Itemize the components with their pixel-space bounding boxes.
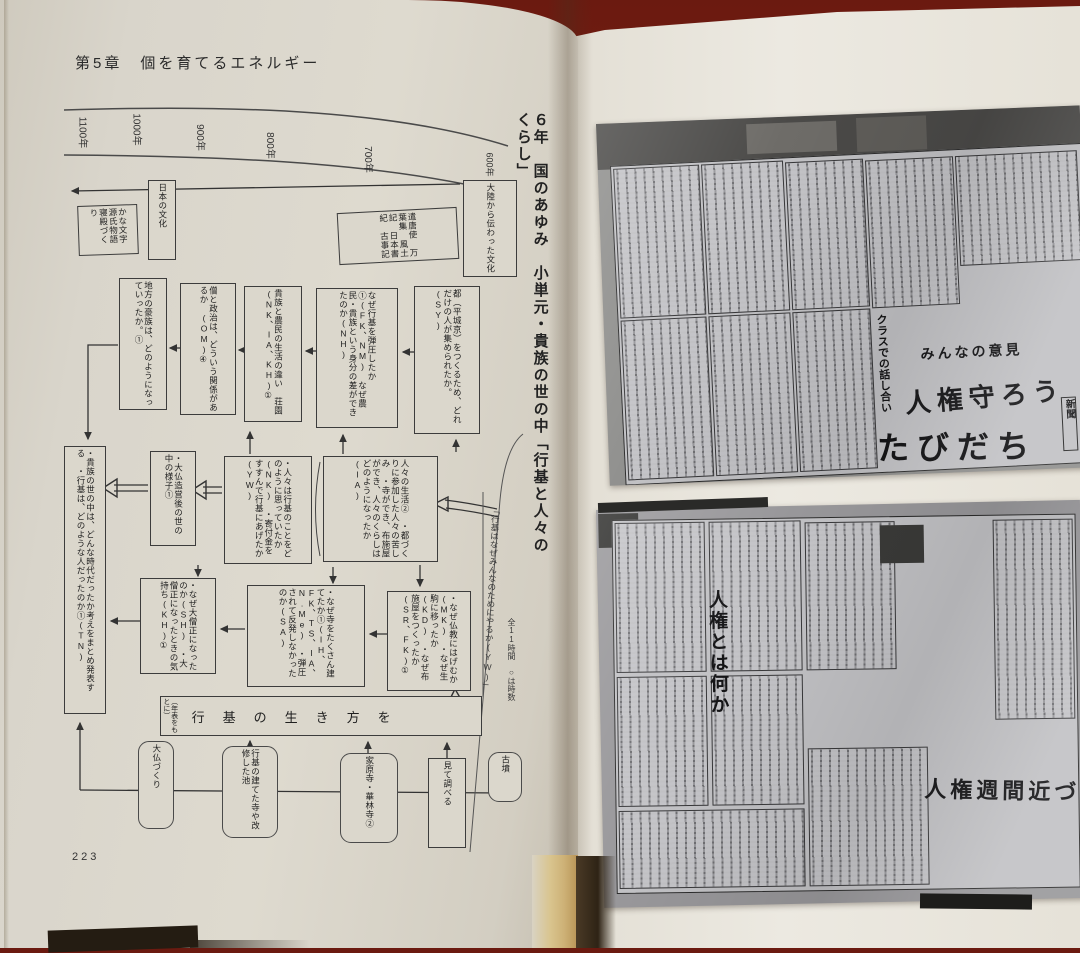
flow-box-mite-shiraberu: 見て調べる <box>428 758 466 848</box>
flow-box-text: ・なぜ仏教にはげむか(MK) ・なぜ生駒に移ったか(KD) ・なぜ布施屋をつくっ… <box>400 594 457 688</box>
gutter-bottom-shadow <box>576 856 616 948</box>
article-cell <box>785 159 870 311</box>
flow-box-text: 大陸から伝わった文化 <box>485 183 495 274</box>
flow-box-matome: ・貴族の世の中は、どんな時代だったか考えをまとめ発表する ・行基は、どのような人… <box>64 446 106 714</box>
flow-box-chiho-gozoku: 地方の豪族は、どのようになっていったか。① <box>119 278 167 410</box>
photo-bottom-bar <box>920 893 1032 909</box>
page-edges-stack <box>532 855 578 948</box>
photo2-main-headline: 人権とは何か <box>706 589 729 719</box>
flow-box-kizoku-nomin: 貴族と農民の生活の違い 荘園(NK、IA、KH)① <box>244 286 302 422</box>
article-cell <box>619 808 806 889</box>
timeline-year: 800年 <box>264 132 279 159</box>
article-cell <box>808 747 930 887</box>
flow-box-daisojo: ・なぜ大僧正になったのか(SH) ・大僧正になったときの気持ち(KH)① <box>140 578 216 674</box>
ikikata-main: 行基の生き方を <box>182 707 480 726</box>
article-cell <box>613 165 706 319</box>
photo-dark-band-patch <box>746 121 837 154</box>
flow-box-text: 地方の豪族は、どのようになっていったか。① <box>133 281 152 407</box>
article-cell <box>621 316 715 480</box>
flow-box-text: 貴族と農民の生活の違い 荘園(NK、IA、KH)① <box>263 289 282 419</box>
cloud-box-kofun: 古墳 <box>488 752 522 802</box>
article-cell <box>792 308 878 472</box>
ikikata-note: （年表をもとに） <box>162 698 178 734</box>
book-bottom-edge <box>48 925 199 952</box>
article-cell <box>993 519 1076 720</box>
article-cell <box>615 522 707 673</box>
photo2-subheadline: 人権週間近づく <box>924 772 1080 808</box>
flow-box-kentoshi: 遣唐使 万葉集 風土記 日本書紀 古事記 <box>337 207 460 265</box>
flow-box-nihon-bunka: 日本の文化 <box>148 180 176 260</box>
timeline-year: 600年 <box>484 152 497 176</box>
photo2-dark-square <box>880 525 925 564</box>
flow-box-bukkyo: ・なぜ仏教にはげむか(MK) ・なぜ生駒に移ったか(KD) ・なぜ布施屋をつくっ… <box>387 591 471 691</box>
photo-dark-band-patch <box>856 115 927 152</box>
flow-box-hitobito-seikatsu: 人々の生活② ・都づくりに参加した人々の苦しみ ・寺ができ、布施屋ができ、人々の… <box>323 456 438 562</box>
cloud-box-tera-ike: 行基の建てた寺や改修した池 <box>222 746 278 838</box>
flow-box-text: ・なぜ寺をたくさん建てたか①(IH、FK、TS、IA、N.Me) ・弾圧されて反… <box>277 588 334 684</box>
article-cell <box>701 161 790 315</box>
cloud-box-daibutsu: 大仏づくり <box>138 741 174 829</box>
left-book-page: 第5章 個を育てるエネルギー <box>0 0 578 948</box>
book-bottom-shadow <box>190 940 310 948</box>
flow-box-text: かな文字 源氏物語 寝殿づくり <box>88 207 128 252</box>
article-cell <box>617 676 709 807</box>
flow-box-text: ・貴族の世の中は、どんな時代だったか考えをまとめ発表する ・行基は、どのような人… <box>75 449 94 711</box>
cloud-box-text: 大仏づくり <box>151 744 161 826</box>
cloud-box-ebaraji: 家原寺・華林寺② <box>340 753 398 843</box>
flow-box-text: 人々の生活② ・都づくりに参加した人々の苦しみ ・寺ができ、布施屋ができ、人々の… <box>352 459 409 559</box>
flow-box-text: 遣唐使 万葉集 風土記 日本書紀 古事記 <box>378 212 418 260</box>
timeline-year: 1100年 <box>76 117 91 149</box>
cloud-box-text: 家原寺・華林寺② <box>364 756 374 840</box>
flow-box-text: 都（平城京）をつくるため、どれだけの人が集められたか。(SY) <box>433 289 462 431</box>
flow-box-danatsu: なぜ行基を弾圧したか①(FK、NM) なぜ農民・貴族という身分の差ができたのか(… <box>316 288 398 428</box>
article-cell <box>955 150 1080 266</box>
newsprint-sheet: クラスでの話し合い みんなの意見 人権守ろう たびだち 新聞 <box>610 143 1080 486</box>
timeline-year: 1000年 <box>131 113 146 145</box>
flow-box-text: ・人々は行基のことをどのように思っていたか(NK) ・寄付金をすすんで行基にあげ… <box>244 459 292 561</box>
timeline-year: 700年 <box>362 146 377 173</box>
flow-box-so-seiji: 僧と政治は、どういう関係があるか (OM)④ <box>180 283 236 415</box>
flow-box-miyako: 都（平城京）をつくるため、どれだけの人が集められたか。(SY) <box>414 286 480 434</box>
cloud-box-text: 古墳 <box>500 755 510 799</box>
cloud-box-text: 行基の建てた寺や改修した池 <box>240 749 259 835</box>
flow-box-tera-tateta: ・なぜ寺をたくさん建てたか①(IH、FK、TS、IA、N.Me) ・弾圧されて反… <box>247 585 365 687</box>
newspaper-photo-bottom: 人権とは何か 人権週間近づく <box>596 500 1080 908</box>
newsprint-sheet: 人権とは何か 人権週間近づく <box>612 514 1080 894</box>
flow-box-text: 僧と政治は、どういう関係があるか (OM)④ <box>198 286 217 412</box>
photo1-masthead: たびだち <box>877 421 1038 469</box>
flow-box-daibutsu-ato: ・大仏造営後の世の中の様子① <box>150 451 196 546</box>
photo1-main-headline: 人権守ろう <box>903 370 1066 420</box>
article-cell <box>865 156 960 308</box>
photo1-subheadline: みんなの意見 <box>920 339 1023 364</box>
flow-box-kana-bunka: かな文字 源氏物語 寝殿づくり <box>77 204 139 256</box>
article-cell <box>708 312 798 476</box>
flow-box-tairiku-bunka: 大陸から伝わった文化 <box>463 180 517 277</box>
flow-box-text: なぜ行基を弾圧したか①(FK、NM) なぜ農民・貴族という身分の差ができたのか(… <box>338 291 376 425</box>
flow-box-text: 見て調べる <box>442 761 452 845</box>
flow-box-text: ・なぜ大僧正になったのか(SH) ・大僧正になったときの気持ち(KH)① <box>159 581 197 671</box>
timeline-year: 900年 <box>194 124 209 151</box>
newspaper-photo-top: クラスでの話し合い みんなの意見 人権守ろう たびだち 新聞 <box>596 105 1080 485</box>
flow-box-ikikata: （年表をもとに） 行基の生き方を <box>160 696 482 736</box>
photo1-shinbun-label: 新聞 <box>1061 396 1079 451</box>
flow-box-text: 日本の文化 <box>157 183 167 257</box>
hours-note: 全11時間 ○は時数 <box>506 618 515 718</box>
flow-box-text: ・大仏造営後の世の中の様子① <box>163 454 182 543</box>
book-photo: { "left": { "chapter": "第5章 個を育てるエネルギー",… <box>0 0 1080 948</box>
flow-box-gyoki-omoi: ・人々は行基のことをどのように思っていたか(NK) ・寄付金をすすんで行基にあげ… <box>224 456 312 564</box>
unit-title: ６年 国のあゆみ 小単元・貴族の世の中「行基と人々のくらし」 <box>514 112 548 564</box>
